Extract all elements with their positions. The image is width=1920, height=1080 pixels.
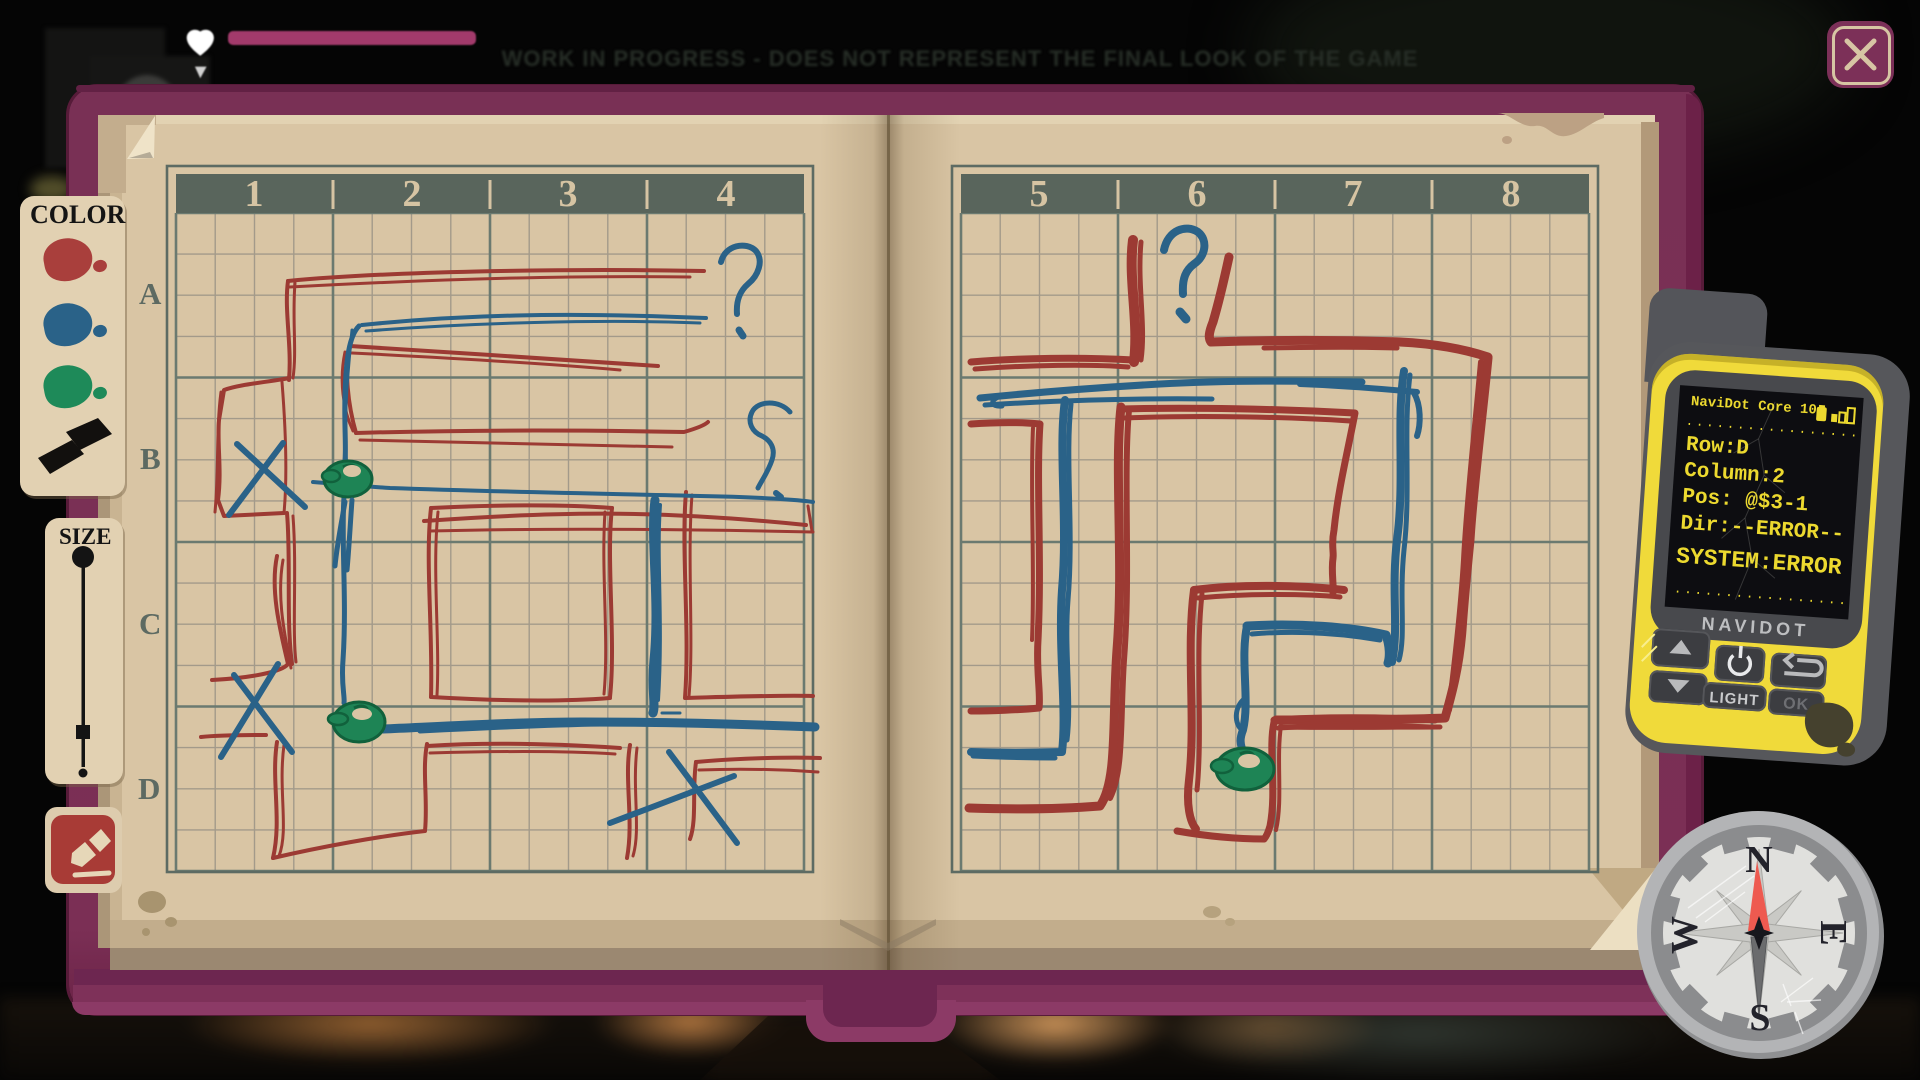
svg-text:W: W: [1664, 916, 1706, 954]
svg-text:LIGHT: LIGHT: [1709, 689, 1760, 709]
svg-text:E: E: [1812, 920, 1854, 945]
svg-text:OK: OK: [1783, 695, 1810, 714]
svg-text:N: N: [1745, 839, 1772, 881]
svg-text:S: S: [1749, 997, 1770, 1039]
